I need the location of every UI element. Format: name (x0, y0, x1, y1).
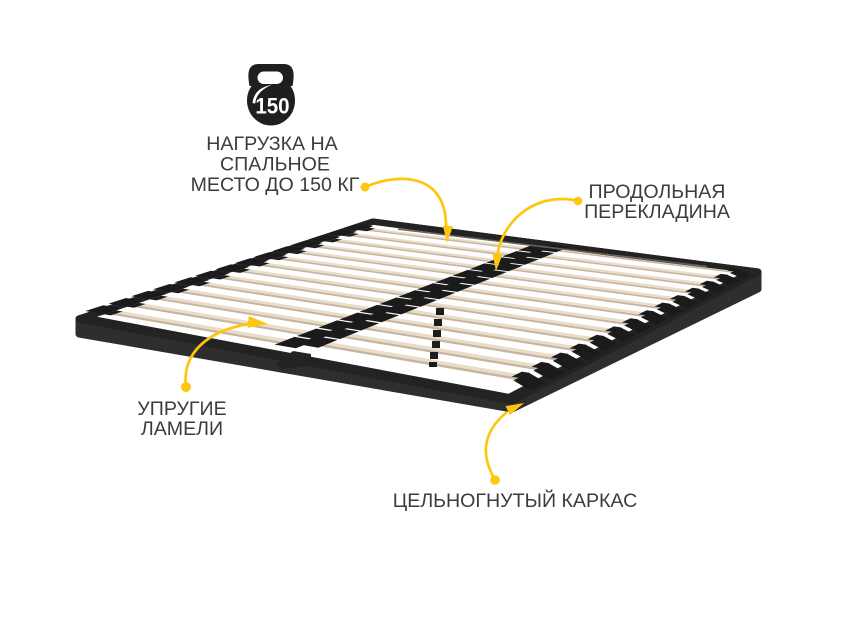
svg-text:МЕСТО ДО 150 КГ: МЕСТО ДО 150 КГ (191, 174, 360, 196)
svg-text:ПЕРЕКЛАДИНА: ПЕРЕКЛАДИНА (584, 201, 731, 223)
svg-text:150: 150 (255, 94, 289, 119)
svg-text:ЛАМЕЛИ: ЛАМЕЛИ (141, 418, 223, 440)
svg-text:НАГРУЗКА НА: НАГРУЗКА НА (206, 133, 338, 155)
svg-text:ЦЕЛЬНОГНУТЫЙ КАРКАС: ЦЕЛЬНОГНУТЫЙ КАРКАС (393, 488, 637, 512)
svg-text:СПАЛЬНОЕ: СПАЛЬНОЕ (220, 154, 330, 176)
svg-text:ПРОДОЛЬНАЯ: ПРОДОЛЬНАЯ (589, 181, 726, 203)
svg-text:УПРУГИЕ: УПРУГИЕ (137, 398, 226, 420)
